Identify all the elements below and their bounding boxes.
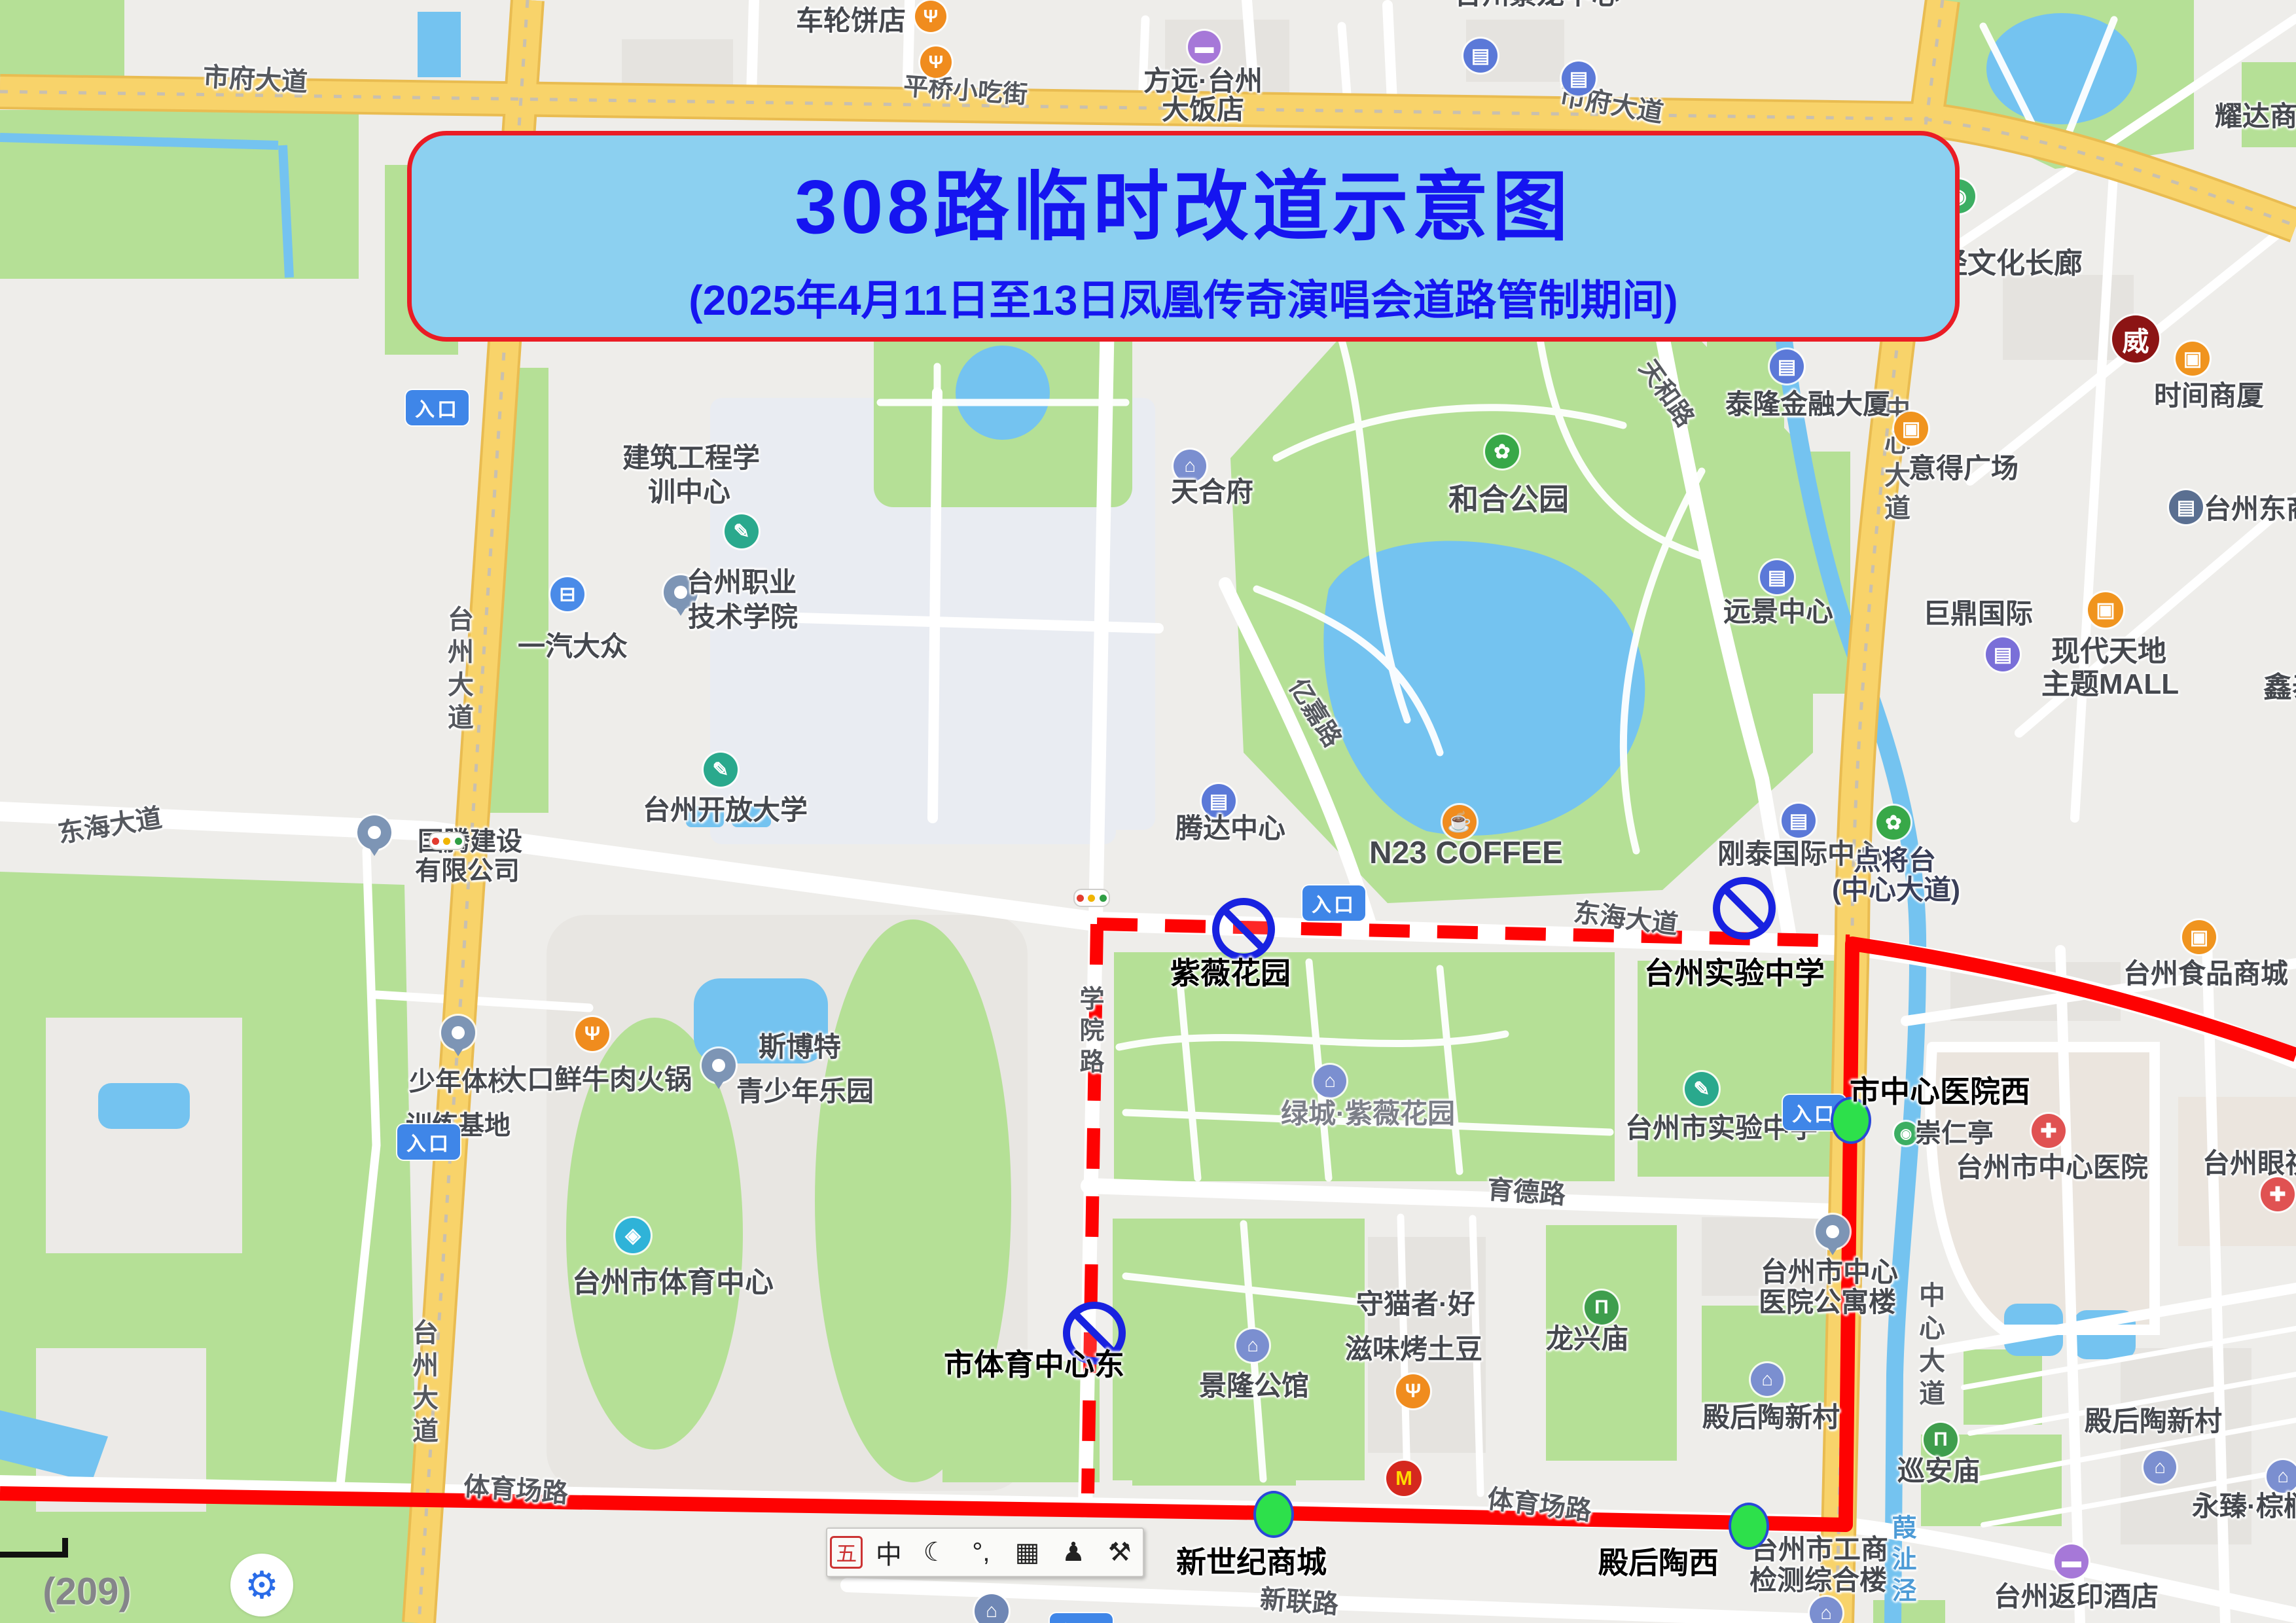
poi-label: 意得广场 [1909, 454, 2018, 483]
traffic-light-icon [1073, 889, 1110, 907]
poi-label: 经文化长廊 [1939, 249, 2083, 279]
route-annotation-label: 新世纪商城 [1176, 1546, 1327, 1578]
school-icon: ✎ [704, 753, 738, 787]
poi-label: 景隆公馆 [1199, 1372, 1309, 1400]
poi-label: 殿后陶新村 [2085, 1407, 2222, 1436]
food-icon: Ψ [1396, 1374, 1430, 1408]
poi-label: 时间商厦 [2154, 382, 2264, 410]
road-label: 中心大道 [1916, 1281, 1943, 1412]
poi-label: 台州返印酒店 [1994, 1582, 2159, 1611]
hotel-icon: ▬ [1188, 31, 1221, 63]
ime-user-icon[interactable]: ♟ [1053, 1533, 1094, 1572]
route-annotation-label: 台州实验中学 [1644, 957, 1825, 989]
no-entry-icon [1212, 898, 1275, 961]
poi-label: 台州市中心 [1761, 1258, 1898, 1287]
road-label: 台州大道 [444, 605, 472, 736]
residential-icon: ⌂ [1236, 1329, 1269, 1362]
poi-label: 方远·台州 [1143, 67, 1263, 96]
mcdonalds-icon: M [1386, 1461, 1422, 1496]
poi-label: 有限公司 [415, 857, 520, 885]
residential-icon: ⌂ [2144, 1451, 2176, 1484]
poi-label: 殿后陶新村 [1702, 1403, 1840, 1432]
poi-label: 腾达中心 [1175, 814, 1285, 843]
office-building-icon: ▤ [1463, 39, 1498, 73]
road-label: 新联路 [1259, 1586, 1340, 1618]
poi-label: 建筑工程学 [622, 444, 760, 473]
poi-label: 技术学院 [688, 603, 798, 632]
residential-icon: ⌂ [2267, 1460, 2296, 1493]
poi-label: 鑫泰 [2263, 673, 2296, 703]
ime-toolbar[interactable]: 五中☾°,▦♟⚒ [826, 1527, 1144, 1577]
poi-label: 台州东商务 [2204, 495, 2296, 524]
poi-label: 医院公寓楼 [1759, 1288, 1896, 1317]
coffee-icon: ☕ [1443, 805, 1477, 839]
poi-label: 青少年乐园 [736, 1077, 874, 1106]
poi-label: 滋味烤土豆 [1345, 1335, 1482, 1364]
office-building-icon: ▤ [1760, 560, 1794, 594]
food-icon: Ψ [920, 46, 952, 78]
poi-label: 车轮饼店 [796, 7, 906, 35]
poi-label: 巨鼎国际 [1923, 599, 2033, 628]
title-banner: 308路临时改道示意图 (2025年4月11日至13日凤凰传奇演唱会道路管制期间… [407, 131, 1960, 342]
poi-label: 台州市中心医院 [1956, 1153, 2148, 1182]
poi-label: 点将台 [1854, 846, 1936, 875]
banner-subtitle: (2025年4月11日至13日凤凰传奇演唱会道路管制期间) [689, 267, 1677, 327]
poi-label: 台州眼视光 [2202, 1149, 2296, 1178]
poi-label: 永臻·棕榈 [2192, 1492, 2296, 1521]
gear-icon: ⚙ [245, 1563, 279, 1607]
food-icon: Ψ [915, 1, 946, 32]
ime-punctuation-icon[interactable]: °, [961, 1533, 1001, 1572]
residential-icon: ⌂ [1314, 1065, 1346, 1097]
shopping-icon: ▣ [2176, 342, 2210, 376]
food-icon: Ψ [575, 1017, 609, 1051]
road-label: 育德路 [1486, 1176, 1567, 1209]
poi-label: 绿城·紫薇花园 [1281, 1099, 1455, 1128]
sports-center-icon: ◈ [615, 1218, 651, 1253]
poi-label: 台州职业 [687, 568, 797, 597]
ime-chinese-icon[interactable]: 中 [869, 1533, 909, 1572]
entrance-badge: 入口 [406, 390, 469, 425]
hospital-icon: ✚ [2032, 1114, 2066, 1148]
poi-label: 少年体校 [409, 1068, 514, 1096]
car-dealer-icon: ⊟ [550, 577, 584, 611]
temple-icon: Π [1924, 1423, 1958, 1457]
poi-label: 龙兴庙 [1546, 1325, 1628, 1353]
office-building-icon: ▤ [1562, 62, 1596, 96]
map-scale-bar [0, 1537, 68, 1558]
poi-label: 台州开放大学 [643, 796, 808, 825]
ime-moon-icon[interactable]: ☾ [914, 1533, 955, 1572]
poi-label: 巡安庙 [1897, 1457, 1980, 1486]
ime-keyboard-icon[interactable]: ▦ [1007, 1533, 1048, 1572]
banner-title: 308路临时改道示意图 [795, 145, 1572, 255]
route-annotation-label: 紫薇花园 [1170, 957, 1291, 989]
road-label: 市府大道 [202, 63, 308, 96]
poi-label: 台州食品商城 [2123, 959, 2288, 988]
poi-label: 主题MALL [2041, 669, 2179, 700]
poi-label: 台州景龙中心 [1454, 0, 1619, 9]
traffic-light-icon [429, 832, 465, 850]
school-icon: ✎ [725, 514, 759, 548]
place-pin-icon [441, 1016, 475, 1050]
office-building-icon: ▤ [1782, 804, 1816, 838]
brand-logo-icon: 威 [2112, 315, 2159, 363]
poi-label: N23 COFFEE [1369, 837, 1563, 870]
place-pin-icon [357, 815, 391, 849]
poi-label: 天合府 [1171, 478, 1253, 507]
settings-gear-button[interactable]: ⚙ [230, 1554, 293, 1616]
poi-label: 远景中心 [1723, 597, 1833, 626]
poi-label: (中心大道) [1832, 876, 1960, 904]
poi-label: 训中心 [648, 478, 730, 507]
poi-label: 斯博特 [759, 1033, 841, 1061]
poi-label: 守猫者·好 [1356, 1290, 1475, 1319]
park-leaf-icon: ✿ [1485, 435, 1519, 469]
shopping-icon: ▣ [1894, 412, 1928, 446]
poi-label: 大饭店 [1162, 96, 1244, 124]
stop-dianhoutaoxi [1729, 1503, 1769, 1550]
poi-label: 台州市体育中心 [572, 1268, 774, 1298]
route-annotation-label: 市体育中心东 [944, 1349, 1124, 1380]
ime-tools-icon[interactable]: ⚒ [1100, 1533, 1140, 1572]
corner-number-label: (209) [43, 1570, 131, 1614]
map-canvas[interactable]: 市府大道平桥小吃街市府大道东海大道东海大道体育场路体育场路育德路新联路台州大道台… [0, 0, 2296, 1623]
route-annotation-label: 殿后陶西 [1598, 1547, 1719, 1578]
road-label: 葭沚泾 [1888, 1514, 1914, 1609]
hotel-icon: ▬ [2054, 1544, 2089, 1578]
no-entry-icon [1713, 877, 1776, 940]
office-building-icon: ▤ [2169, 490, 2203, 524]
entrance-badge: 入口 [1302, 885, 1365, 921]
road-label: 学院路 [1075, 986, 1102, 1080]
scenic-camera-icon: ◉ [1894, 1122, 1918, 1145]
ime-wubi-icon[interactable]: 五 [830, 1536, 863, 1569]
poi-label: 一汽大众 [518, 632, 628, 661]
route-annotation-label: 市中心医院西 [1850, 1076, 2030, 1107]
residential-icon: ⌂ [975, 1594, 1009, 1623]
poi-label: 现代天地 [2051, 637, 2166, 667]
shopping-icon: ▣ [2182, 920, 2216, 954]
hospital-icon: ✚ [2261, 1177, 2295, 1211]
place-pin-icon [1816, 1215, 1850, 1249]
entrance-badge: 入口 [397, 1124, 460, 1160]
shopping-icon: ▣ [2088, 592, 2123, 628]
school-icon: ✎ [1685, 1072, 1719, 1106]
office-building-icon: ▤ [1770, 349, 1804, 383]
park-leaf-icon: ✿ [1876, 806, 1910, 840]
temple-icon: Π [1585, 1291, 1619, 1325]
entrance-badge: 入口 [1050, 1613, 1113, 1623]
residential-icon: ⌂ [1751, 1363, 1784, 1396]
poi-label: 和合公园 [1448, 484, 1569, 515]
office-building-icon: ▤ [1986, 637, 2020, 671]
poi-label: 崇仁亭 [1915, 1120, 1994, 1147]
poi-label: 检测综合楼 [1749, 1566, 1887, 1595]
poi-label: 台州市工商 [1751, 1535, 1888, 1564]
place-pin-icon [702, 1048, 736, 1082]
stop-xinshijishangcheng [1253, 1491, 1294, 1538]
poi-label: 耀达商务 [2215, 102, 2296, 131]
road-label: 台州大道 [409, 1319, 437, 1450]
poi-label: 大口鲜牛肉火锅 [499, 1065, 692, 1094]
poi-label: 泰隆金融大厦 [1725, 390, 1890, 419]
